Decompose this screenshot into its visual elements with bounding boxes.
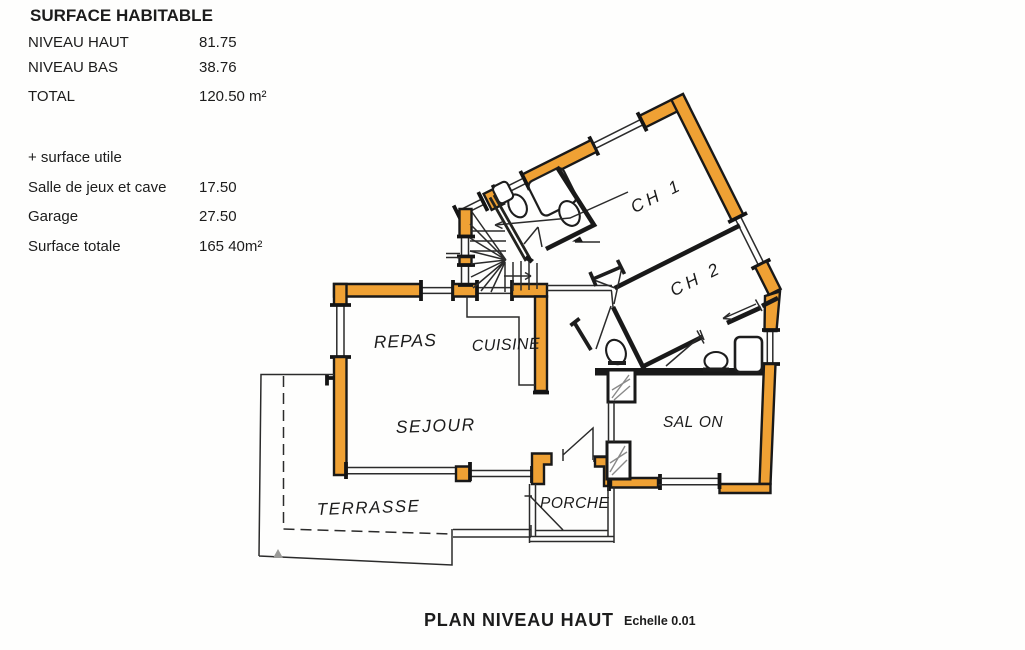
svg-text:CH 2: CH 2 (667, 257, 726, 300)
svg-text:Echelle 0.01: Echelle 0.01 (624, 614, 696, 628)
svg-text:81.75: 81.75 (199, 34, 237, 51)
svg-text:120.50 m²: 120.50 m² (199, 88, 267, 105)
svg-text:CUISINE: CUISINE (472, 336, 541, 355)
svg-text:+ surface utile: + surface utile (28, 149, 122, 166)
svg-text:CH 1: CH 1 (627, 174, 686, 217)
svg-text:NIVEAU BAS: NIVEAU BAS (28, 59, 118, 76)
svg-text:38.76: 38.76 (199, 59, 237, 76)
svg-text:REPAS: REPAS (373, 330, 437, 352)
svg-text:TOTAL: TOTAL (28, 88, 75, 105)
svg-text:Surface totale: Surface totale (28, 238, 121, 255)
svg-text:NIVEAU HAUT: NIVEAU HAUT (28, 34, 129, 51)
svg-text:Salle de jeux et cave: Salle de jeux et cave (28, 179, 166, 196)
svg-text:Garage: Garage (28, 208, 78, 225)
svg-text:TERRASSE: TERRASSE (316, 496, 420, 519)
svg-text:SALON: SALON (663, 414, 723, 431)
svg-text:165 40m²: 165 40m² (199, 238, 262, 255)
svg-text:SEJOUR: SEJOUR (395, 414, 476, 437)
svg-text:PORCHE: PORCHE (540, 495, 609, 512)
svg-text:27.50: 27.50 (199, 208, 237, 225)
svg-text:PLAN NIVEAU HAUT: PLAN NIVEAU HAUT (424, 610, 614, 630)
svg-text:17.50: 17.50 (199, 179, 237, 196)
svg-text:SURFACE HABITABLE: SURFACE HABITABLE (30, 6, 213, 25)
